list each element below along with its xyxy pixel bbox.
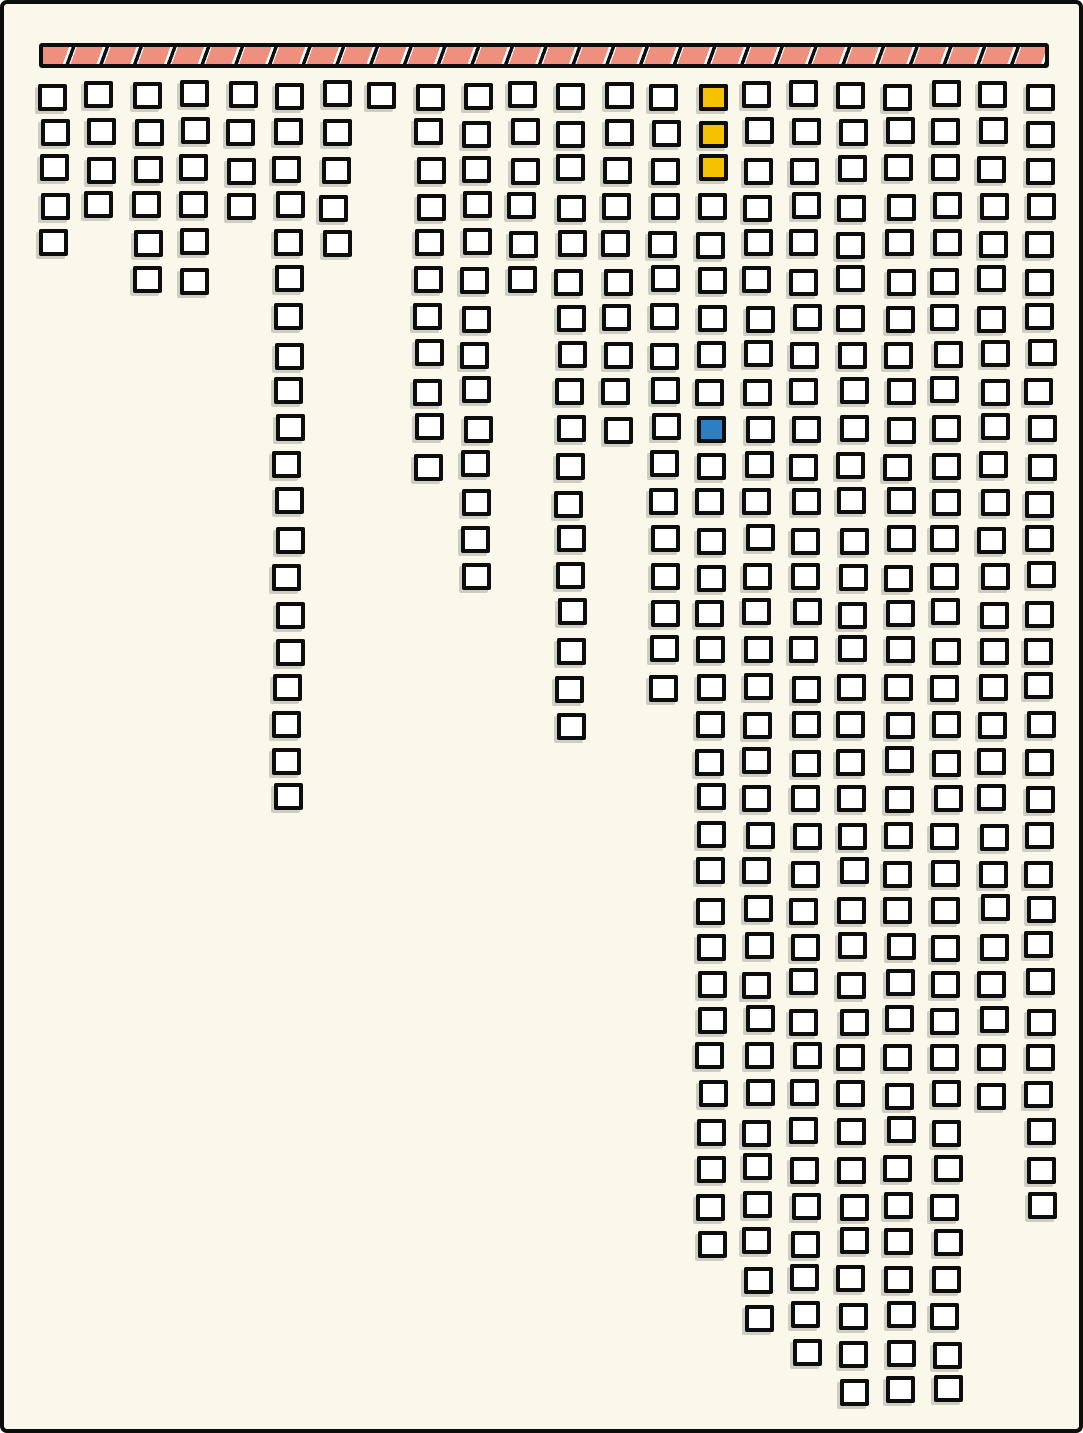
grid-cell bbox=[556, 154, 585, 181]
grid-cell bbox=[838, 602, 867, 629]
grid-cell bbox=[84, 191, 113, 218]
grid-cell bbox=[1025, 491, 1054, 518]
grid-cell bbox=[697, 1119, 726, 1146]
grid-cell bbox=[1028, 1192, 1057, 1219]
grid-cell bbox=[415, 413, 444, 440]
grid-cell bbox=[272, 748, 301, 775]
grid-cell bbox=[697, 565, 726, 592]
grid-cell bbox=[930, 823, 959, 850]
grid-cell bbox=[698, 193, 727, 220]
grid-cell bbox=[556, 121, 585, 148]
grid-cell bbox=[1025, 822, 1054, 849]
grid-cell bbox=[789, 1009, 818, 1036]
grid-cell bbox=[743, 195, 772, 222]
grid-cell bbox=[652, 120, 681, 147]
grid-cell bbox=[884, 1192, 913, 1219]
grid-cell bbox=[414, 118, 443, 145]
grid-cell bbox=[744, 158, 773, 185]
grid-cell bbox=[556, 453, 585, 480]
grid-cell bbox=[887, 1116, 916, 1143]
grid-cell bbox=[1026, 158, 1055, 185]
grid-cell bbox=[980, 824, 1009, 851]
grid-cell bbox=[84, 81, 113, 108]
grid-cell bbox=[883, 861, 912, 888]
grid-cell bbox=[793, 1042, 822, 1069]
grid-cell bbox=[883, 1044, 912, 1071]
grid-cell bbox=[979, 117, 1008, 144]
grid-cell bbox=[651, 600, 680, 627]
grid-cell bbox=[276, 191, 305, 218]
grid-cell bbox=[133, 266, 162, 293]
grid-cell bbox=[462, 489, 491, 516]
grid-cell bbox=[836, 749, 865, 776]
grid-cell bbox=[931, 154, 960, 181]
grid-cell bbox=[885, 746, 914, 773]
grid-cell bbox=[836, 1044, 865, 1071]
grid-cell bbox=[40, 154, 69, 181]
grid-cell bbox=[413, 379, 442, 406]
grid-cell bbox=[696, 232, 725, 259]
grid-cell bbox=[840, 1194, 869, 1221]
grid-cell bbox=[650, 635, 679, 662]
grid-cell bbox=[651, 193, 680, 220]
grid-cell bbox=[886, 636, 915, 663]
grid-cell bbox=[934, 1155, 963, 1182]
grid-cell bbox=[791, 563, 820, 590]
grid-cell bbox=[1024, 378, 1053, 405]
grid-cell bbox=[274, 229, 303, 256]
grid-cell bbox=[977, 748, 1006, 775]
grid-cell bbox=[555, 676, 584, 703]
grid-cell bbox=[464, 83, 493, 110]
grid-cell bbox=[558, 598, 587, 625]
grid-cell bbox=[836, 305, 865, 332]
grid-cell bbox=[274, 377, 303, 404]
grid-cell bbox=[978, 712, 1007, 739]
grid-cell bbox=[509, 231, 538, 258]
grid-cell bbox=[87, 157, 116, 184]
grid-cell bbox=[837, 487, 866, 514]
grid-cell bbox=[837, 195, 866, 222]
grid-cell bbox=[742, 972, 771, 999]
grid-cell bbox=[1027, 1118, 1056, 1145]
grid-cell bbox=[697, 341, 726, 368]
grid-cell bbox=[838, 635, 867, 662]
grid-cell bbox=[886, 117, 915, 144]
grid-cell bbox=[886, 1376, 915, 1403]
grid-cell bbox=[1026, 121, 1055, 148]
grid-cell bbox=[272, 711, 301, 738]
grid-cell bbox=[695, 749, 724, 776]
grid-cell bbox=[884, 342, 913, 369]
grid-cell bbox=[745, 932, 774, 959]
grid-cell bbox=[931, 935, 960, 962]
grid-cell bbox=[1025, 601, 1054, 628]
grid-cell bbox=[274, 783, 303, 810]
grid-cell bbox=[650, 450, 679, 477]
grid-cell bbox=[87, 118, 116, 145]
grid-cell bbox=[792, 676, 821, 703]
grid-cell bbox=[840, 1009, 869, 1036]
grid-cell bbox=[930, 304, 959, 331]
grid-cell bbox=[650, 343, 679, 370]
grid-cell bbox=[134, 156, 163, 183]
grid-cell bbox=[978, 81, 1007, 108]
grid-cell bbox=[746, 524, 775, 551]
grid-cell bbox=[651, 377, 680, 404]
grid-cell bbox=[603, 157, 632, 184]
grid-cell bbox=[789, 80, 818, 107]
grid-cell bbox=[462, 306, 491, 333]
grid-cell bbox=[229, 81, 258, 108]
grid-cell bbox=[977, 1044, 1006, 1071]
grid-cell bbox=[837, 897, 866, 924]
grid-cell bbox=[695, 600, 724, 627]
grid-cell bbox=[793, 598, 822, 625]
grid-cell bbox=[836, 265, 865, 292]
grid-cell bbox=[181, 117, 210, 144]
grid-cell bbox=[557, 195, 586, 222]
grid-cell bbox=[649, 84, 678, 111]
grid-cell bbox=[789, 898, 818, 925]
grid-cell bbox=[696, 636, 725, 663]
grid-cell bbox=[839, 564, 868, 591]
grid-cell bbox=[838, 932, 867, 959]
grid-cell bbox=[180, 228, 209, 255]
grid-cell bbox=[837, 1157, 866, 1184]
grid-cell bbox=[884, 1266, 913, 1293]
grid-cell bbox=[133, 82, 162, 109]
grid-cell bbox=[554, 491, 583, 518]
grid-cell bbox=[462, 156, 491, 183]
grid-cell bbox=[930, 376, 959, 403]
grid-cell bbox=[840, 415, 869, 442]
grid-cell bbox=[696, 857, 725, 884]
grid-cell bbox=[695, 488, 724, 515]
grid-cell bbox=[742, 1227, 771, 1254]
grid-cell bbox=[743, 712, 772, 739]
grid-cell bbox=[789, 269, 818, 296]
grid-cell bbox=[1027, 896, 1056, 923]
grid-cell bbox=[839, 119, 868, 146]
grid-cell bbox=[276, 602, 305, 629]
grid-cell bbox=[463, 228, 492, 255]
grid-cell bbox=[508, 81, 537, 108]
grid-cell-highlighted bbox=[699, 154, 728, 181]
grid-cell bbox=[840, 1227, 869, 1254]
grid-cell bbox=[934, 1229, 963, 1256]
grid-cell bbox=[697, 821, 726, 848]
grid-cell bbox=[932, 489, 961, 516]
grid-cell bbox=[698, 1007, 727, 1034]
grid-cell bbox=[1025, 525, 1054, 552]
grid-cell bbox=[697, 528, 726, 555]
grid-cell bbox=[789, 968, 818, 995]
grid-cell bbox=[745, 117, 774, 144]
grid-cell bbox=[557, 638, 586, 665]
grid-cell bbox=[791, 1301, 820, 1328]
grid-cell bbox=[604, 269, 633, 296]
grid-cell bbox=[932, 1120, 961, 1147]
grid-cell bbox=[1027, 1157, 1056, 1184]
chart-frame bbox=[0, 0, 1083, 1433]
grid-cell bbox=[41, 119, 70, 146]
grid-cell bbox=[932, 453, 961, 480]
grid-cell bbox=[793, 1339, 822, 1366]
grid-cell bbox=[930, 1303, 959, 1330]
grid-cell bbox=[508, 266, 537, 293]
grid-cell bbox=[744, 636, 773, 663]
grid-cell bbox=[698, 971, 727, 998]
grid-cell bbox=[838, 823, 867, 850]
grid-cell bbox=[839, 1341, 868, 1368]
grid-cell bbox=[930, 563, 959, 590]
grid-cell bbox=[979, 231, 1008, 258]
grid-cell bbox=[790, 342, 819, 369]
grid-cell bbox=[840, 528, 869, 555]
grid-cell bbox=[460, 342, 489, 369]
grid-cell bbox=[649, 488, 678, 515]
grid-cell bbox=[836, 1080, 865, 1107]
grid-cell bbox=[460, 267, 489, 294]
grid-cell bbox=[557, 525, 586, 552]
grid-cell bbox=[511, 158, 540, 185]
grid-cell bbox=[930, 1194, 959, 1221]
grid-cell bbox=[977, 784, 1006, 811]
grid-cell bbox=[742, 1120, 771, 1147]
grid-cell bbox=[981, 894, 1010, 921]
grid-cell bbox=[415, 339, 444, 366]
grid-cell bbox=[883, 454, 912, 481]
grid-cell bbox=[417, 194, 446, 221]
grid-cell bbox=[697, 674, 726, 701]
grid-cell bbox=[742, 785, 771, 812]
grid-cell bbox=[698, 1231, 727, 1258]
grid-cell bbox=[413, 303, 442, 330]
grid-cell bbox=[605, 119, 634, 146]
grid-cell bbox=[695, 379, 724, 406]
grid-cell bbox=[885, 786, 914, 813]
grid-cell bbox=[792, 711, 821, 738]
grid-cell bbox=[885, 1005, 914, 1032]
grid-cell bbox=[884, 565, 913, 592]
grid-cell-highlighted bbox=[699, 84, 728, 111]
grid-cell bbox=[887, 269, 916, 296]
grid-cell bbox=[981, 563, 1010, 590]
grid-cell bbox=[743, 1153, 772, 1180]
grid-cell bbox=[650, 303, 679, 330]
grid-cell bbox=[933, 229, 962, 256]
grid-cell bbox=[179, 154, 208, 181]
grid-cell bbox=[979, 451, 1008, 478]
unit-square-grid bbox=[4, 4, 1079, 1429]
grid-cell bbox=[883, 1155, 912, 1182]
grid-cell bbox=[226, 119, 255, 146]
grid-cell bbox=[883, 897, 912, 924]
grid-cell bbox=[461, 526, 490, 553]
grid-cell bbox=[462, 563, 491, 590]
grid-cell bbox=[274, 118, 303, 145]
grid-cell bbox=[652, 413, 681, 440]
grid-cell bbox=[275, 83, 304, 110]
grid-cell bbox=[932, 750, 961, 777]
grid-cell bbox=[836, 452, 865, 479]
grid-cell bbox=[836, 1265, 865, 1292]
grid-cell bbox=[790, 1079, 819, 1106]
grid-cell bbox=[1024, 672, 1053, 699]
grid-cell bbox=[745, 451, 774, 478]
grid-cell bbox=[838, 155, 867, 182]
grid-cell bbox=[746, 1005, 775, 1032]
grid-cell bbox=[276, 527, 305, 554]
grid-cell bbox=[887, 1301, 916, 1328]
grid-cell bbox=[746, 822, 775, 849]
grid-cell bbox=[836, 232, 865, 259]
grid-cell bbox=[934, 341, 963, 368]
grid-cell bbox=[651, 265, 680, 292]
grid-cell bbox=[791, 934, 820, 961]
grid-cell bbox=[1027, 1009, 1056, 1036]
grid-cell bbox=[697, 453, 726, 480]
grid-cell bbox=[319, 195, 348, 222]
grid-cell bbox=[134, 230, 163, 257]
grid-cell bbox=[742, 747, 771, 774]
grid-cell bbox=[932, 711, 961, 738]
grid-cell bbox=[886, 969, 915, 996]
grid-cell bbox=[744, 1267, 773, 1294]
grid-cell bbox=[887, 525, 916, 552]
grid-cell bbox=[931, 971, 960, 998]
grid-cell bbox=[886, 712, 915, 739]
grid-cell bbox=[276, 414, 305, 441]
grid-cell bbox=[792, 750, 821, 777]
grid-cell bbox=[698, 305, 727, 332]
grid-cell bbox=[464, 416, 493, 443]
grid-cell bbox=[273, 674, 302, 701]
grid-cell bbox=[932, 80, 961, 107]
grid-cell bbox=[651, 563, 680, 590]
grid-cell bbox=[933, 192, 962, 219]
grid-cell-highlighted bbox=[697, 416, 726, 443]
grid-cell bbox=[887, 933, 916, 960]
grid-cell bbox=[931, 118, 960, 145]
grid-cell bbox=[930, 268, 959, 295]
grid-cell bbox=[323, 230, 352, 257]
grid-cell bbox=[1024, 861, 1053, 888]
grid-cell bbox=[41, 193, 70, 220]
grid-cell bbox=[981, 340, 1010, 367]
grid-cell bbox=[977, 156, 1006, 183]
grid-cell bbox=[1027, 561, 1056, 588]
grid-cell bbox=[697, 934, 726, 961]
grid-cell bbox=[1024, 638, 1053, 665]
grid-cell bbox=[930, 675, 959, 702]
grid-cell bbox=[977, 306, 1006, 333]
grid-cell bbox=[789, 1117, 818, 1144]
grid-cell bbox=[789, 229, 818, 256]
grid-cell bbox=[790, 158, 819, 185]
grid-cell bbox=[836, 711, 865, 738]
grid-cell bbox=[791, 861, 820, 888]
grid-cell bbox=[838, 342, 867, 369]
grid-cell bbox=[932, 1266, 961, 1293]
grid-cell bbox=[885, 229, 914, 256]
grid-cell bbox=[886, 600, 915, 627]
grid-cell bbox=[274, 303, 303, 330]
grid-cell bbox=[605, 82, 634, 109]
grid-cell bbox=[977, 265, 1006, 292]
grid-cell bbox=[696, 898, 725, 925]
grid-cell bbox=[507, 192, 536, 219]
grid-cell bbox=[557, 415, 586, 442]
grid-cell bbox=[463, 191, 492, 218]
grid-cell bbox=[367, 82, 396, 109]
grid-cell bbox=[275, 265, 304, 292]
grid-cell bbox=[227, 158, 256, 185]
grid-cell bbox=[745, 1305, 774, 1332]
grid-cell bbox=[886, 306, 915, 333]
grid-cell bbox=[934, 1375, 963, 1402]
grid-cell bbox=[746, 1079, 775, 1106]
grid-cell bbox=[272, 156, 301, 183]
grid-cell bbox=[697, 783, 726, 810]
grid-cell bbox=[1027, 193, 1056, 220]
grid-cell bbox=[415, 229, 444, 256]
grid-cell bbox=[840, 377, 869, 404]
grid-cell bbox=[602, 193, 631, 220]
grid-cell bbox=[276, 639, 305, 666]
grid-cell bbox=[840, 1379, 869, 1406]
grid-cell bbox=[414, 454, 443, 481]
grid-cell bbox=[930, 1044, 959, 1071]
grid-cell bbox=[1026, 786, 1055, 813]
grid-cell bbox=[1024, 1081, 1053, 1108]
grid-cell bbox=[980, 638, 1009, 665]
grid-cell bbox=[135, 119, 164, 146]
grid-cell bbox=[554, 269, 583, 296]
grid-cell bbox=[462, 376, 491, 403]
grid-cell bbox=[883, 84, 912, 111]
grid-cell bbox=[1025, 231, 1054, 258]
grid-cell bbox=[649, 675, 678, 702]
grid-cell bbox=[793, 823, 822, 850]
grid-cell bbox=[602, 304, 631, 331]
grid-cell bbox=[981, 413, 1010, 440]
grid-cell bbox=[275, 487, 304, 514]
grid-cell bbox=[744, 895, 773, 922]
grid-cell bbox=[887, 1340, 916, 1367]
grid-cell bbox=[695, 1042, 724, 1069]
grid-cell bbox=[1026, 968, 1055, 995]
grid-cell bbox=[648, 231, 677, 258]
grid-cell bbox=[1027, 711, 1056, 738]
grid-cell bbox=[1026, 1044, 1055, 1071]
grid-cell bbox=[1025, 749, 1054, 776]
grid-cell bbox=[792, 488, 821, 515]
grid-cell bbox=[887, 194, 916, 221]
grid-cell bbox=[323, 80, 352, 107]
grid-cell bbox=[979, 674, 1008, 701]
grid-cell bbox=[651, 525, 680, 552]
grid-cell bbox=[414, 266, 443, 293]
grid-cell bbox=[696, 1194, 725, 1221]
grid-cell bbox=[789, 378, 818, 405]
grid-cell bbox=[837, 674, 866, 701]
grid-cell bbox=[790, 1264, 819, 1291]
grid-cell bbox=[789, 636, 818, 663]
grid-cell bbox=[789, 454, 818, 481]
grid-cell bbox=[417, 157, 446, 184]
